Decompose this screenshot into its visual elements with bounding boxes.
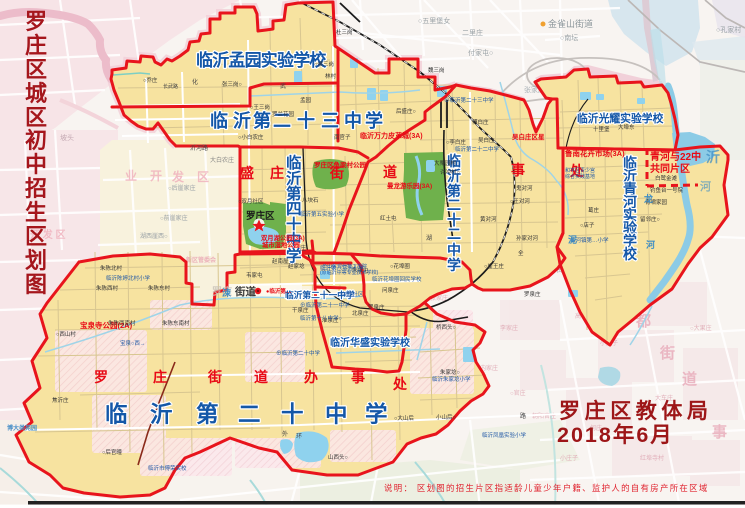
svg-text:坡头: 坡头 bbox=[60, 133, 74, 142]
svg-text:黄对河: 黄对河 bbox=[480, 215, 497, 223]
svg-text:罗泉庄: 罗泉庄 bbox=[524, 290, 541, 298]
svg-text:(原临沂中等专业技术学校): (原临沂中等专业技术学校) bbox=[320, 269, 379, 276]
svg-text:路: 路 bbox=[520, 412, 526, 420]
svg-text:临沂万力皮革城(3A): 临沂万力皮革城(3A) bbox=[360, 131, 423, 140]
svg-text:河: 河 bbox=[700, 179, 711, 193]
svg-text:宝泉○西→: 宝泉○西→ bbox=[120, 339, 145, 347]
svg-text:区: 区 bbox=[25, 224, 47, 249]
svg-text:二: 二 bbox=[238, 402, 261, 427]
svg-text:龙: 龙 bbox=[643, 193, 653, 204]
svg-text:盛: 盛 bbox=[240, 165, 254, 181]
svg-text:小庄子: 小庄子 bbox=[560, 454, 578, 462]
svg-text:新区管委会: 新区管委会 bbox=[186, 256, 217, 264]
svg-text:临沂市傅荣实校: 临沂市傅荣实校 bbox=[148, 464, 187, 472]
svg-text:庄: 庄 bbox=[25, 33, 47, 58]
svg-text:○李白庄: ○李白庄 bbox=[446, 138, 466, 146]
svg-text:留邻庄○: 留邻庄○ bbox=[640, 215, 660, 223]
svg-text:第: 第 bbox=[253, 110, 271, 131]
svg-text:2018年6月: 2018年6月 bbox=[557, 422, 674, 447]
svg-text:赵南屋: 赵南屋 bbox=[272, 257, 289, 265]
svg-text:学: 学 bbox=[365, 110, 383, 131]
svg-text:魏三岗: 魏三岗 bbox=[428, 66, 445, 74]
svg-text:○前崖家庄: ○前崖家庄 bbox=[160, 214, 188, 222]
svg-text:罗: 罗 bbox=[25, 9, 47, 34]
svg-text:开: 开 bbox=[150, 169, 162, 183]
svg-text:葛庄: 葛庄 bbox=[588, 206, 600, 214]
svg-text:发: 发 bbox=[171, 169, 185, 184]
svg-text:焦沂庄: 焦沂庄 bbox=[52, 396, 69, 404]
svg-text:涑: 涑 bbox=[222, 287, 232, 298]
svg-text:事: 事 bbox=[511, 162, 525, 178]
svg-text:街: 街 bbox=[659, 344, 675, 362]
svg-text:吴白庄区星: 吴白庄区星 bbox=[512, 132, 545, 141]
svg-text:外: 外 bbox=[282, 430, 288, 438]
svg-text:生: 生 bbox=[25, 200, 47, 225]
svg-text:街: 街 bbox=[207, 369, 222, 385]
svg-text:临沂朱家埝小学: 临沂朱家埝小学 bbox=[432, 375, 471, 383]
svg-text:曼龙游乐园(3A): 曼龙游乐园(3A) bbox=[387, 181, 432, 190]
svg-text:○大果庄: ○大果庄 bbox=[690, 324, 712, 332]
svg-text:○候三岗: ○候三岗 bbox=[314, 60, 334, 68]
svg-text:区: 区 bbox=[25, 57, 47, 82]
svg-text:山西头○: 山西头○ bbox=[328, 453, 348, 461]
svg-text:二里庄: 二里庄 bbox=[462, 28, 483, 37]
svg-text:朱陈东南村: 朱陈东南村 bbox=[162, 319, 190, 327]
svg-text:林村: 林村 bbox=[325, 72, 337, 80]
svg-text:○乔庄: ○乔庄 bbox=[143, 76, 158, 84]
svg-text:中: 中 bbox=[447, 242, 461, 258]
svg-text:第: 第 bbox=[196, 401, 219, 427]
svg-text:大白农庄: 大白农庄 bbox=[210, 156, 234, 164]
svg-text:○王对河: ○王对河 bbox=[510, 197, 530, 205]
svg-text:泥: 泥 bbox=[568, 234, 577, 245]
svg-text:南官子: 南官子 bbox=[334, 133, 351, 141]
svg-text:环: 环 bbox=[296, 433, 302, 440]
svg-text:鬼对河: 鬼对河 bbox=[516, 184, 533, 192]
svg-text:临沂孟园实验学校: 临沂孟园实验学校 bbox=[196, 50, 327, 70]
svg-text:北泉庄: 北泉庄 bbox=[352, 309, 369, 317]
svg-text:付家屯○: 付家屯○ bbox=[468, 48, 493, 57]
svg-text:事: 事 bbox=[712, 423, 727, 441]
svg-text:街道: 街道 bbox=[234, 285, 256, 298]
svg-text:中: 中 bbox=[325, 402, 348, 427]
svg-text:青河与22中: 青河与22中 bbox=[650, 150, 701, 163]
svg-text:罗泉庄: 罗泉庄 bbox=[368, 303, 385, 311]
svg-text:临沂光耀实验学校: 临沂光耀实验学校 bbox=[577, 111, 664, 125]
svg-text:○后官疃: ○后官疃 bbox=[102, 448, 122, 456]
svg-text:化: 化 bbox=[192, 78, 198, 86]
svg-text:临沂第十八中学○: 临沂第十八中学○ bbox=[300, 314, 342, 322]
svg-text:○后崖家庄: ○后崖家庄 bbox=[168, 184, 196, 192]
svg-text:李家庄: 李家庄 bbox=[500, 324, 518, 332]
svg-text:许冲村○: 许冲村○ bbox=[440, 168, 460, 176]
svg-text:中: 中 bbox=[25, 152, 47, 177]
svg-text:○店子: ○店子 bbox=[580, 221, 595, 229]
svg-text:韦家屯: 韦家屯 bbox=[246, 271, 263, 279]
svg-text:沂: 沂 bbox=[706, 149, 720, 165]
svg-text:双月湖公园(3A): 双月湖公园(3A) bbox=[261, 233, 305, 242]
svg-text:鲁南花卉市场(3A): 鲁南花卉市场(3A) bbox=[565, 148, 625, 158]
svg-text:十: 十 bbox=[281, 402, 304, 427]
svg-text:钓鱼台一号院: 钓鱼台一号院 bbox=[650, 186, 684, 194]
svg-text:庄: 庄 bbox=[270, 165, 284, 181]
svg-text:临: 临 bbox=[210, 110, 228, 131]
svg-text:朱家埝○: 朱家埝○ bbox=[440, 368, 460, 376]
svg-text:道: 道 bbox=[383, 164, 397, 180]
svg-text:杜三岗: 杜三岗 bbox=[336, 28, 353, 36]
svg-text:招: 招 bbox=[25, 176, 47, 201]
svg-text:桥西头○: 桥西头○ bbox=[436, 323, 456, 331]
svg-text:道: 道 bbox=[682, 370, 697, 388]
svg-text:共同片区: 共同片区 bbox=[650, 162, 690, 175]
svg-text:朱陈西南村: 朱陈西南村 bbox=[108, 319, 136, 327]
svg-text:区: 区 bbox=[25, 105, 47, 130]
svg-text:红土屯: 红土屯 bbox=[380, 214, 397, 222]
svg-text:傅白庄: 傅白庄 bbox=[472, 118, 489, 126]
svg-text:划: 划 bbox=[25, 248, 47, 273]
svg-text:朱陈东村: 朱陈东村 bbox=[148, 284, 171, 292]
svg-text:罗庄区教体局: 罗庄区教体局 bbox=[559, 399, 713, 423]
svg-text:临沂花埠圈回民学校: 临沂花埠圈回民学校 bbox=[372, 275, 422, 283]
svg-text:红埠寺村: 红埠寺村 bbox=[640, 454, 664, 462]
svg-text:临: 临 bbox=[286, 153, 302, 172]
svg-text:○官庄: ○官庄 bbox=[510, 389, 526, 397]
svg-text:罗兰花园: 罗兰花园 bbox=[272, 110, 295, 118]
svg-text:○兴旺社区: ○兴旺社区 bbox=[338, 290, 364, 298]
svg-text:⊕山东现代技工学院: ⊕山东现代技工学院 bbox=[322, 263, 367, 270]
svg-text:临沂第二十二中学: 临沂第二十二中学 bbox=[455, 145, 500, 153]
svg-text:初: 初 bbox=[25, 128, 47, 153]
svg-text:临沂华盛实验学校: 临沂华盛实验学校 bbox=[330, 336, 411, 349]
svg-text:和平区青少宫: 和平区青少宫 bbox=[565, 167, 595, 174]
svg-text:临沂陈婷北村小学: 临沂陈婷北村小学 bbox=[106, 274, 151, 282]
svg-text:孙家对河: 孙家对河 bbox=[516, 234, 539, 242]
svg-text:张三岗○: 张三岗○ bbox=[222, 80, 242, 88]
svg-text:庄: 庄 bbox=[300, 244, 306, 252]
svg-text:○王三岗: ○王三岗 bbox=[250, 104, 270, 111]
svg-text:沂: 沂 bbox=[233, 110, 251, 131]
svg-text:○孔家村: ○孔家村 bbox=[716, 25, 741, 34]
svg-text:图: 图 bbox=[25, 272, 47, 297]
svg-text:学: 学 bbox=[447, 257, 461, 273]
svg-text:湖: 湖 bbox=[426, 234, 432, 242]
svg-text:综合实践基地: 综合实践基地 bbox=[565, 173, 595, 180]
svg-text:后盛庄○: 后盛庄○ bbox=[396, 107, 416, 115]
svg-text:沂河路: 沂河路 bbox=[190, 144, 208, 152]
svg-text:临沂凤凰实验小学: 临沂凤凰实验小学 bbox=[482, 431, 527, 439]
svg-text:金雀山街道: 金雀山街道 bbox=[548, 18, 593, 29]
svg-text:全: 全 bbox=[518, 249, 524, 257]
svg-text:三: 三 bbox=[321, 111, 339, 131]
svg-text:城: 城 bbox=[25, 81, 47, 106]
svg-text:庄: 庄 bbox=[153, 369, 167, 385]
svg-text:中: 中 bbox=[344, 110, 362, 131]
svg-text:吴白庄: 吴白庄 bbox=[478, 136, 495, 144]
svg-text:○小白农庄: ○小白农庄 bbox=[238, 133, 264, 141]
svg-text:武: 武 bbox=[280, 82, 286, 90]
svg-text:⊕临沂第二十三中学: ⊕临沂第二十三中学 bbox=[444, 96, 494, 104]
svg-text:○南坛: ○南坛 bbox=[560, 33, 578, 42]
svg-text:处: 处 bbox=[392, 376, 408, 392]
svg-text:校: 校 bbox=[623, 246, 638, 262]
svg-text:大栗园村: 大栗园村 bbox=[434, 159, 457, 167]
svg-text:十: 十 bbox=[297, 110, 315, 131]
svg-text:○崔王庄: ○崔王庄 bbox=[484, 262, 504, 270]
svg-text:○双月社区: ○双月社区 bbox=[238, 197, 264, 205]
svg-text:区: 区 bbox=[197, 170, 209, 184]
svg-text:二: 二 bbox=[447, 226, 461, 242]
svg-text:湖西崖西○: 湖西崖西○ bbox=[140, 232, 168, 240]
svg-text:○西山村: ○西山村 bbox=[56, 330, 76, 338]
svg-text:罗庄区鱼梁村公园: 罗庄区鱼梁村公园 bbox=[314, 160, 367, 169]
svg-text:城市湿地公园: 城市湿地公园 bbox=[262, 240, 300, 249]
svg-text:○大山后: ○大山后 bbox=[394, 414, 414, 422]
svg-text:大埠东: 大埠东 bbox=[618, 123, 635, 131]
svg-text:朱陈西村: 朱陈西村 bbox=[96, 284, 119, 292]
svg-text:朱陈北村: 朱陈北村 bbox=[100, 264, 123, 272]
svg-text:事: 事 bbox=[351, 369, 365, 385]
svg-text:白鹭金滩: 白鹭金滩 bbox=[655, 174, 678, 182]
svg-text:十里堡: 十里堡 bbox=[593, 125, 610, 133]
svg-text:业: 业 bbox=[125, 168, 137, 183]
svg-text:办: 办 bbox=[304, 369, 318, 385]
svg-text:罗: 罗 bbox=[94, 369, 108, 385]
svg-text:问泉庄: 问泉庄 bbox=[382, 286, 399, 294]
svg-text:博大类苑园: 博大类苑园 bbox=[7, 424, 37, 432]
svg-text:学: 学 bbox=[365, 401, 388, 427]
svg-text:○五里堡女: ○五里堡女 bbox=[418, 16, 450, 25]
svg-text:○花埠圈: ○花埠圈 bbox=[390, 262, 410, 270]
svg-text:沂: 沂 bbox=[150, 402, 173, 427]
svg-text:孟园: 孟园 bbox=[300, 96, 312, 104]
svg-text:小山后○: 小山后○ bbox=[436, 413, 456, 421]
svg-text:河: 河 bbox=[646, 239, 655, 250]
svg-text:⊕临沂第二十一中学: ⊕临沂第二十一中学 bbox=[300, 301, 350, 309]
svg-text:道: 道 bbox=[254, 369, 268, 385]
svg-text:●临沂第…: ●临沂第… bbox=[266, 287, 291, 295]
svg-text:⊕临沂第二十中学: ⊕临沂第二十中学 bbox=[276, 349, 321, 357]
svg-text:八块石: 八块石 bbox=[302, 196, 319, 204]
svg-text:长武路: 长武路 bbox=[163, 83, 178, 90]
svg-text:说明： 区划图的招生片区指适龄儿童少年户籍、监护人的自有房产: 说明： 区划图的招生片区指适龄儿童少年户籍、监护人的自有房产所在区域 bbox=[384, 483, 709, 493]
svg-text:临: 临 bbox=[105, 401, 128, 427]
svg-text:临沂第五实验小学: 临沂第五实验小学 bbox=[300, 210, 345, 218]
svg-text:二: 二 bbox=[447, 197, 461, 213]
svg-text:赵家埝: 赵家埝 bbox=[288, 262, 305, 270]
